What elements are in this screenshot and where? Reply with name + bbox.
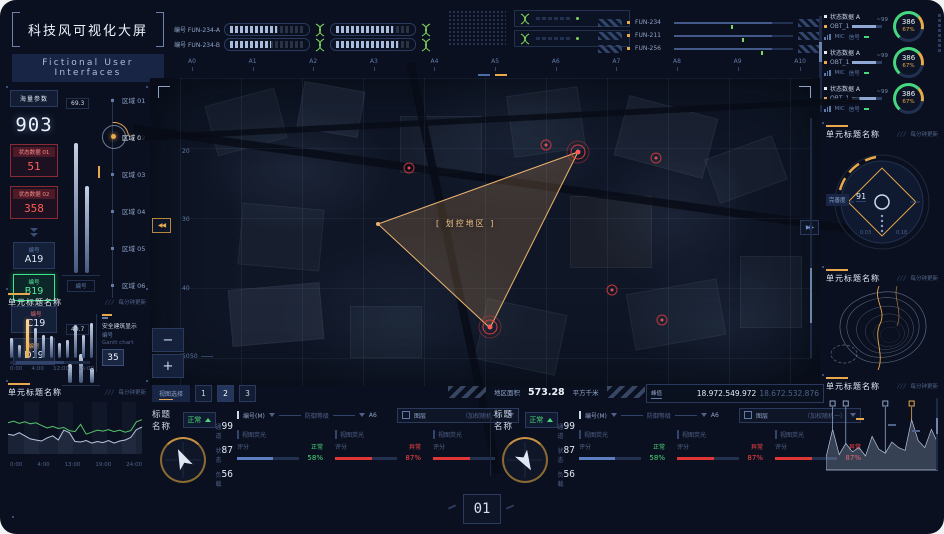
stat-row: 负载56 xyxy=(558,469,575,488)
link-x-icon xyxy=(520,33,530,45)
link-x-icon xyxy=(420,23,432,37)
x-axis-label: 24:00 xyxy=(126,462,142,468)
map-canvas[interactable]: A0A1A2A3A4A5A6A7A8A9A10 20304050 ◀◀ ▶▶ xyxy=(150,56,820,406)
panel-divider xyxy=(490,412,491,476)
scale-label: 50 xyxy=(190,353,213,360)
metric-bar xyxy=(677,457,739,460)
app-title-block: 科技风可视化大屏 Fictional User Interfaces xyxy=(12,12,164,82)
accent-bar xyxy=(579,411,581,419)
route-mid: 防御等级 xyxy=(647,411,671,420)
metric-block: 视图荧光 评分正常 58% xyxy=(237,430,323,462)
status-name: OBT_1 xyxy=(830,23,849,30)
slider-label: FUN-234 xyxy=(635,19,669,26)
bullet-icon xyxy=(824,25,827,28)
caret-up-icon xyxy=(547,418,553,422)
metric-bar xyxy=(579,457,641,460)
dot-icon xyxy=(111,247,114,250)
threat-marker[interactable] xyxy=(657,315,667,325)
alert-value: 358 xyxy=(13,199,55,216)
card-line1: 安全建筑显示 xyxy=(102,321,146,330)
dot-icon xyxy=(111,284,114,287)
update-hint: 每分钟更新 xyxy=(910,382,938,390)
unit-contour-panel: 单元标题名称 每分钟更新 xyxy=(826,272,938,372)
dot-icon xyxy=(111,99,114,102)
slider-label: FUN-256 xyxy=(635,45,669,52)
status-item: 状态数据 A OBT_1~99 MIC信号 38667% xyxy=(824,44,938,80)
area-info: 地区面积 573.28 平方千米 xyxy=(448,386,645,398)
slashes-icon xyxy=(105,299,114,306)
page-tick-decoration xyxy=(506,504,514,509)
edge-strip-decoration xyxy=(938,12,941,52)
zone-label: [ 划控地区 ] xyxy=(436,218,495,229)
mini-progress-bar xyxy=(852,25,882,28)
dot-matrix-decoration xyxy=(448,10,506,46)
panel-title: 单元标题名称 xyxy=(826,129,880,140)
green-dash-icon xyxy=(864,108,869,110)
mic-label: MIC xyxy=(835,70,845,76)
metric-percent: 58% xyxy=(645,454,665,462)
alert-box: 状态数据 02 358 xyxy=(10,186,58,219)
gauge-value: 386 xyxy=(902,19,915,27)
bar-chart-bar xyxy=(26,319,29,358)
signal-label: 信号 xyxy=(849,69,860,77)
diamond-gauge: 0.030.18 完善度 91 xyxy=(832,148,932,252)
contour-map xyxy=(826,286,938,370)
bar-chart-bar xyxy=(90,323,93,358)
unit-bar-panel: 单元标题名称 每分钟更新 0:004:0012:0015:00 安全建筑显示 编… xyxy=(8,296,146,378)
status-dot-icon xyxy=(576,17,579,20)
mic-label: MIC xyxy=(835,34,845,40)
vertical-meter: 69.3 编号 xyxy=(62,90,100,292)
area-marker xyxy=(830,401,835,406)
x-axis-labels: 0:004:0013:0019:0024:00 xyxy=(8,462,144,468)
equalizer-icon xyxy=(824,34,831,40)
view-button-1[interactable]: 1 xyxy=(195,385,212,402)
bar-chart-bar xyxy=(42,335,45,358)
metric-bar xyxy=(433,457,495,460)
signal-label: 信号 xyxy=(849,33,860,41)
panel-title: 单元标题名称 xyxy=(826,273,880,284)
slashes-icon xyxy=(105,389,114,396)
peak-value: 18.972.549.972 xyxy=(697,389,757,398)
peak-label: 峰值 xyxy=(651,389,662,399)
x-axis-label: 15:00 xyxy=(78,366,94,372)
dash-line xyxy=(279,415,301,416)
gauge-label: 编号 FUN-234-A xyxy=(172,25,220,34)
peak-readout: 峰值 18.972.549.972 18.672.532.876 xyxy=(646,384,824,403)
hazard-stripe-icon xyxy=(607,386,645,398)
slider-track[interactable] xyxy=(674,48,793,50)
equalizer-icon xyxy=(824,106,831,112)
card-line2: 编号 xyxy=(102,331,146,339)
gauge-value: 91 xyxy=(856,192,866,202)
line-chart xyxy=(8,402,144,458)
compass-icon xyxy=(160,437,206,483)
link-x-icon xyxy=(520,13,530,25)
chevron-down-icon xyxy=(30,228,38,232)
mini-progress-bar xyxy=(852,61,882,64)
metric-percent: 87% xyxy=(401,454,421,462)
ring-gauge: 38667% xyxy=(893,83,924,114)
view-selector: 视图选择 1 2 3 xyxy=(152,385,256,402)
slider-handle[interactable] xyxy=(731,25,733,29)
view-selector-label: 视图选择 xyxy=(152,385,190,402)
caret-up-icon xyxy=(205,418,211,422)
peak-value: ~99 xyxy=(876,53,888,59)
metric-status: 正常 xyxy=(311,442,323,451)
x-axis-label: 0:00 xyxy=(10,366,22,372)
target-reticle-icon xyxy=(102,125,126,149)
status-dot-icon xyxy=(576,37,579,40)
dot-icon xyxy=(111,173,114,176)
stat-row: 负载56 xyxy=(216,469,233,488)
bullet-icon xyxy=(627,21,630,24)
threat-marker[interactable] xyxy=(607,285,617,295)
alert-value: 51 xyxy=(13,157,55,174)
alert-label: 状态数据 01 xyxy=(13,147,55,157)
x-axis-label: 4:00 xyxy=(37,462,49,468)
peak-value: ~99 xyxy=(876,17,888,23)
metric-status: 正常 xyxy=(653,442,665,451)
slider-row[interactable]: FUN-234 xyxy=(598,16,822,29)
status-title: 状态数据 A xyxy=(830,12,860,21)
unit-gauge-panel: 单元标题名称 每分钟更新 0.030.18 完善度 91 xyxy=(826,128,938,264)
slashes-icon xyxy=(897,275,906,282)
slider-handle[interactable] xyxy=(761,51,763,55)
zoom-in-button[interactable]: + xyxy=(152,354,184,378)
link-x-icon xyxy=(314,38,326,52)
panel-accent xyxy=(826,377,848,379)
segmented-bar xyxy=(224,38,310,51)
panel-accent xyxy=(826,125,848,127)
control-panel-left: 标题名称 正常 通道99 状态87 负载56 编号(M) 防御等级 A6 图层（… xyxy=(152,408,488,482)
status-title: 状态数据 A xyxy=(830,48,860,57)
x-axis-label: 19:00 xyxy=(95,462,111,468)
hazard-stripe-icon xyxy=(448,386,486,398)
update-hint: 每分钟更新 xyxy=(118,388,146,396)
gauge-percent: 67% xyxy=(902,27,914,33)
control-panel-right: 标题名称 正常 通道99 状态87 负载56 编号(M) 防御等级 A6 图层（… xyxy=(494,408,820,482)
route-from: 编号(M) xyxy=(585,411,607,420)
status-dropdown[interactable]: 正常 xyxy=(183,412,215,428)
dot-icon xyxy=(111,210,114,213)
meter-bar xyxy=(74,143,78,273)
panel-accent xyxy=(8,383,30,385)
sidebar-item-region-01[interactable]: 区域 01 xyxy=(106,94,150,106)
route-to: A6 xyxy=(711,412,719,419)
slider-row[interactable]: FUN-211 xyxy=(598,29,822,42)
slashes-icon xyxy=(897,131,906,138)
dash-line xyxy=(675,415,697,416)
meter-value: 69.3 xyxy=(66,98,89,109)
equalizer-icon xyxy=(824,70,831,76)
panel-title: 单元标题名称 xyxy=(8,387,62,398)
alert-label: 状态数据 02 xyxy=(13,189,55,199)
area-marker xyxy=(843,401,848,406)
card-value: 35 xyxy=(102,349,124,366)
bullet-icon xyxy=(627,47,630,50)
route-mid: 防御等级 xyxy=(305,411,329,420)
svg-text:0.18: 0.18 xyxy=(896,230,907,236)
threat-marker[interactable] xyxy=(404,163,414,173)
meter-label: 编号 xyxy=(67,280,95,292)
id-chip[interactable]: 编号 A19 xyxy=(13,242,55,269)
area-marker xyxy=(909,401,914,406)
right-edge-slider[interactable] xyxy=(936,398,938,470)
segmented-bar xyxy=(330,23,416,36)
metric-percent: 58% xyxy=(303,454,323,462)
status-dropdown[interactable]: 正常 xyxy=(525,412,557,428)
page-title: 科技风可视化大屏 xyxy=(12,12,164,47)
x-axis-label: 12:00 xyxy=(53,366,69,372)
zoom-out-button[interactable]: − xyxy=(152,328,184,352)
sidebar-item-region-04[interactable]: 区域 04 xyxy=(106,205,150,217)
gauge-percent: 67% xyxy=(902,63,914,69)
gauge-row: 编号 FUN-234-A xyxy=(172,22,444,37)
metric-block: 视图荧光 评分正常 58% xyxy=(579,430,665,462)
gantt-icon xyxy=(102,314,146,319)
slider-row[interactable]: FUN-256 xyxy=(598,42,822,55)
sidebar-item-region-03[interactable]: 区域 03 xyxy=(106,168,150,180)
slider-handle[interactable] xyxy=(742,38,744,42)
x-axis-label: 0:00 xyxy=(10,462,22,468)
alert-box: 状态数据 01 51 xyxy=(10,144,58,177)
bar-chart-bar xyxy=(34,328,37,358)
page-tick-decoration xyxy=(448,504,456,509)
green-dash-icon xyxy=(864,72,869,74)
mic-label: MIC xyxy=(835,106,845,112)
gauge-value: 386 xyxy=(902,55,915,63)
bar-chart-bar xyxy=(66,340,69,358)
slider-track[interactable] xyxy=(674,35,793,37)
svg-text:0.03: 0.03 xyxy=(860,230,871,236)
metric-block: 视图荧光 评分异常 87% xyxy=(335,430,421,462)
metric-status: 异常 xyxy=(409,442,421,451)
bullet-icon xyxy=(824,51,827,54)
caret-down-icon xyxy=(611,413,617,417)
metric-block: 视图荧光 评分异常 87% xyxy=(677,430,763,462)
bar-chart-bar xyxy=(74,325,77,358)
panel-accent xyxy=(826,269,848,271)
segmented-bar xyxy=(330,38,416,51)
map-overlay xyxy=(150,56,820,406)
metric-bar xyxy=(237,457,299,460)
gauge-value: 386 xyxy=(902,91,915,99)
caret-down-icon xyxy=(701,413,707,417)
compass-icon xyxy=(502,437,548,483)
dashboard: 科技风可视化大屏 Fictional User Interfaces 编号 FU… xyxy=(0,0,944,534)
gauge-percent: 67% xyxy=(902,99,914,105)
area-unit: 平方千米 xyxy=(573,387,599,397)
status-name: OBT_1 xyxy=(830,59,849,66)
bullet-icon xyxy=(824,61,827,64)
ring-gauge: 38667% xyxy=(893,11,924,42)
peak-value-secondary: 18.672.532.876 xyxy=(759,389,819,398)
area-label: 地区面积 xyxy=(494,387,520,397)
bar-chart-bar xyxy=(50,336,53,358)
panel-title: 单元标题名称 xyxy=(826,381,880,392)
caret-down-icon xyxy=(359,413,365,417)
update-hint: 每分钟更新 xyxy=(910,274,938,282)
update-hint: 每分钟更新 xyxy=(118,298,146,306)
x-axis-label: 13:00 xyxy=(65,462,81,468)
metric-percent: 87% xyxy=(743,454,763,462)
x-axis-label: 4:00 xyxy=(32,366,44,372)
stat-row: 状态87 xyxy=(216,445,233,464)
header-gauge-group: 编号 FUN-234-A 编号 FUN-234-B xyxy=(172,22,444,52)
page-indicator[interactable]: 01 xyxy=(463,494,501,524)
signal-label: 信号 xyxy=(849,105,860,113)
area-value: 573.28 xyxy=(528,387,565,398)
area-marker xyxy=(883,401,888,406)
unit-line-panel: 单元标题名称 每分钟更新 0:004:0013:0019:0024:00 xyxy=(8,386,146,480)
route-row: 编号(M) 防御等级 A6 图层（加权随机一） xyxy=(237,408,519,422)
panel-title: 单元标题名称 xyxy=(8,297,62,308)
checkbox-icon[interactable] xyxy=(402,411,410,419)
meter-bar xyxy=(85,186,89,273)
meter-bars xyxy=(62,115,100,276)
peak-value: ~99 xyxy=(876,89,888,95)
metric-bar xyxy=(335,457,397,460)
view-button-2[interactable]: 2 xyxy=(217,385,234,402)
card-line3: Gantt chart xyxy=(102,340,146,346)
threat-marker[interactable] xyxy=(567,141,589,163)
x-axis-labels: 0:004:0012:0015:00 xyxy=(8,366,96,372)
stat-row: 通道99 xyxy=(558,421,575,440)
bar-chart: 0:004:0012:0015:00 xyxy=(8,314,96,372)
chart-scrollbar[interactable] xyxy=(10,361,90,364)
status-title: 状态数据 A xyxy=(830,84,860,93)
stat-row: 通道99 xyxy=(216,421,233,440)
update-hint: 每分钟更新 xyxy=(910,130,938,138)
gauge-tag: 完善度 xyxy=(826,194,849,206)
route-row: 编号(M) 防御等级 A6 图层（加权随机一） xyxy=(579,408,861,422)
slashes-icon xyxy=(897,383,906,390)
metric-status: 异常 xyxy=(751,442,763,451)
gauge-label: 编号 FUN-234-B xyxy=(172,40,220,49)
panel-accent xyxy=(8,293,30,295)
dash-line xyxy=(333,415,355,416)
unit-area-panel: 单元标题名称 每分钟更新 xyxy=(826,380,938,480)
param-header: 海量参数 xyxy=(10,90,58,107)
ring-gauge: 38667% xyxy=(893,47,924,78)
sidebar-item-region-06[interactable]: 区域 06 xyxy=(106,279,150,291)
green-dash-icon xyxy=(864,36,869,38)
bullet-icon xyxy=(824,15,827,18)
bar-chart-bar xyxy=(10,338,13,358)
panel-title: 标题名称 xyxy=(494,408,519,432)
area-chart xyxy=(826,396,938,472)
bullet-icon xyxy=(824,87,827,90)
panel-title: 标题名称 xyxy=(152,408,177,432)
bar-chart-bar xyxy=(18,345,21,358)
status-item: 状态数据 A OBT_1~99 MIC信号 38667% xyxy=(824,8,938,44)
caret-down-icon xyxy=(269,413,275,417)
threat-marker[interactable] xyxy=(541,140,551,150)
threat-marker[interactable] xyxy=(651,153,661,163)
bullet-icon xyxy=(627,34,630,37)
info-card: 安全建筑显示 编号 Gantt chart 35 xyxy=(96,314,146,372)
hazard-stripe-icon xyxy=(598,19,622,27)
param-big-value: 903 xyxy=(10,114,58,136)
link-x-icon xyxy=(420,38,432,52)
slider-label: FUN-211 xyxy=(635,32,669,39)
slider-thumb[interactable] xyxy=(936,418,938,434)
gauge-row: 编号 FUN-234-B xyxy=(172,37,444,52)
hazard-stripe-icon xyxy=(598,45,622,53)
bar-chart-bar xyxy=(82,335,85,358)
segmented-bar xyxy=(224,23,310,36)
slider-track[interactable] xyxy=(674,22,793,24)
accent-bar xyxy=(237,411,239,419)
chevron-down-icon xyxy=(30,233,38,237)
route-from: 编号(M) xyxy=(243,411,265,420)
hazard-stripe-icon xyxy=(598,32,622,40)
zone-triangle[interactable] xyxy=(378,152,578,328)
bar-chart-bar xyxy=(58,343,61,358)
stat-row: 状态87 xyxy=(558,445,575,464)
page-subtitle: Fictional User Interfaces xyxy=(12,54,164,82)
orange-tick-decoration xyxy=(98,166,100,178)
link-x-icon xyxy=(314,23,326,37)
dash-line xyxy=(621,415,643,416)
view-button-3[interactable]: 3 xyxy=(239,385,256,402)
sidebar-item-region-05[interactable]: 区域 05 xyxy=(106,242,150,254)
header-slider-group: FUN-234 FUN-211 FUN-256 xyxy=(598,16,822,55)
checkbox-icon[interactable] xyxy=(744,411,752,419)
route-to: A6 xyxy=(369,412,377,419)
